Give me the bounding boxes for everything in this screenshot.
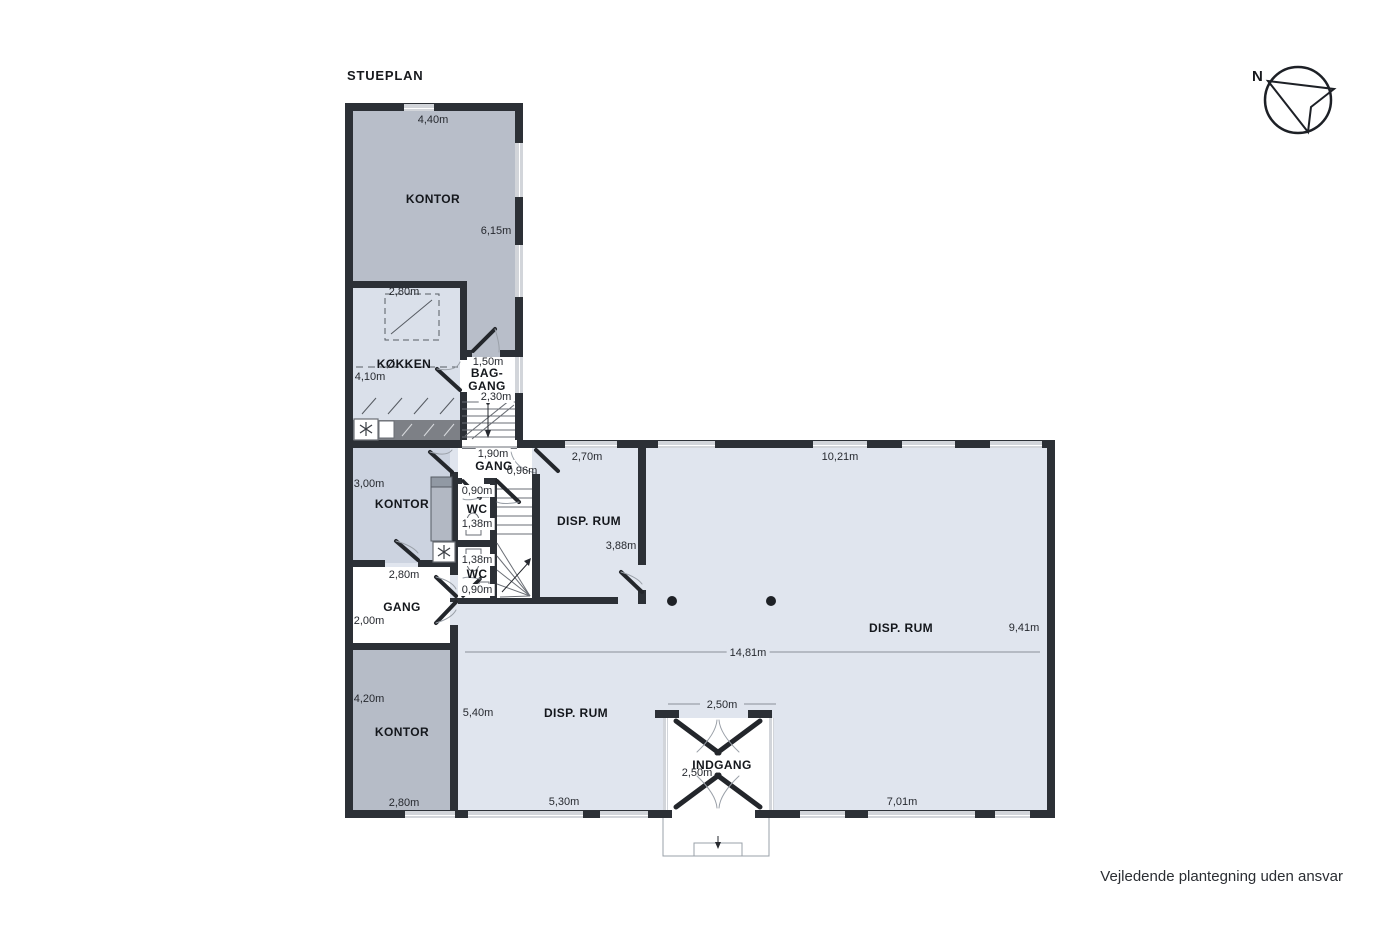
room-label-kontor-top: KONTOR	[406, 193, 460, 205]
dim-indgang-depth: 2,50m	[682, 767, 713, 779]
dim-kontor-top-width: 4,40m	[418, 114, 449, 126]
dim-baggang-width: 1,50m	[473, 356, 504, 368]
stairs-main	[497, 489, 532, 597]
dim-disp-bottom-width: 5,30m	[549, 796, 580, 808]
columns	[667, 596, 776, 606]
stairs-baggang	[462, 400, 517, 447]
disclaimer-text: Vejledende plantegning uden ansvar	[1100, 868, 1343, 885]
room-label-disp-small: DISP. RUM	[557, 515, 621, 527]
dim-disp-small-width: 2,70m	[572, 451, 603, 463]
dim-gang-mid-height: 2,00m	[354, 615, 385, 627]
dim-gang-mid-width: 2,80m	[389, 569, 420, 581]
dim-wc-top-width: 0,90m	[460, 485, 495, 497]
dim-disp-large-width: 10,21m	[822, 451, 859, 463]
freezer-icon-2	[433, 542, 455, 562]
floorplan-page: N STUEPLAN Vejledende plantegning uden a…	[0, 0, 1400, 933]
dim-baggang-depth: 2,30m	[479, 391, 514, 403]
dim-wc-bottom-width: 0,90m	[460, 584, 495, 596]
dim-wc-top-depth: 1,38m	[460, 518, 495, 530]
dim-wc-bottom-depth: 1,38m	[460, 554, 495, 566]
room-label-koekken: KØKKEN	[377, 358, 431, 370]
dim-disp-large-bottom: 7,01m	[887, 796, 918, 808]
page-title: STUEPLAN	[347, 68, 423, 83]
dim-disp-bottom-height: 5,40m	[463, 707, 494, 719]
dim-disp-small-height: 3,88m	[606, 540, 637, 552]
compass-icon	[1255, 60, 1345, 150]
dim-gang-top-door: 0,96m	[507, 465, 538, 477]
floorplan-overlay	[0, 0, 1400, 933]
dim-kontor-top-height: 6,15m	[481, 225, 512, 237]
room-label-disp-large: DISP. RUM	[869, 622, 933, 634]
kitchen-hatch-square	[385, 294, 439, 340]
wardrobe	[431, 477, 452, 541]
porch	[663, 818, 769, 856]
dim-disp-large-length: 14,81m	[727, 647, 770, 659]
freezer-icon	[354, 419, 378, 440]
room-label-kontor-bottom: KONTOR	[375, 726, 429, 738]
room-label-gang-mid: GANG	[383, 601, 421, 613]
dim-indgang-width: 2,50m	[707, 699, 738, 711]
dim-kontor-mid-height: 3,00m	[354, 478, 385, 490]
dim-disp-large-height: 9,41m	[1009, 622, 1040, 634]
dim-koekken-height: 4,10m	[355, 371, 386, 383]
room-label-kontor-mid: KONTOR	[375, 498, 429, 510]
room-label-disp-bottom: DISP. RUM	[544, 707, 608, 719]
dimension-lines	[465, 652, 1040, 704]
dim-kontor-bottom-width: 2,80m	[389, 797, 420, 809]
room-label-baggang-1: BAG-	[471, 367, 503, 379]
dim-kontor-bottom-height: 4,20m	[354, 693, 385, 705]
dim-koekken-width: 2,80m	[389, 286, 420, 298]
room-label-wc-top: WC	[467, 503, 488, 515]
dim-gang-top-width: 1,90m	[476, 448, 511, 460]
room-label-wc-bottom: WC	[467, 568, 488, 580]
